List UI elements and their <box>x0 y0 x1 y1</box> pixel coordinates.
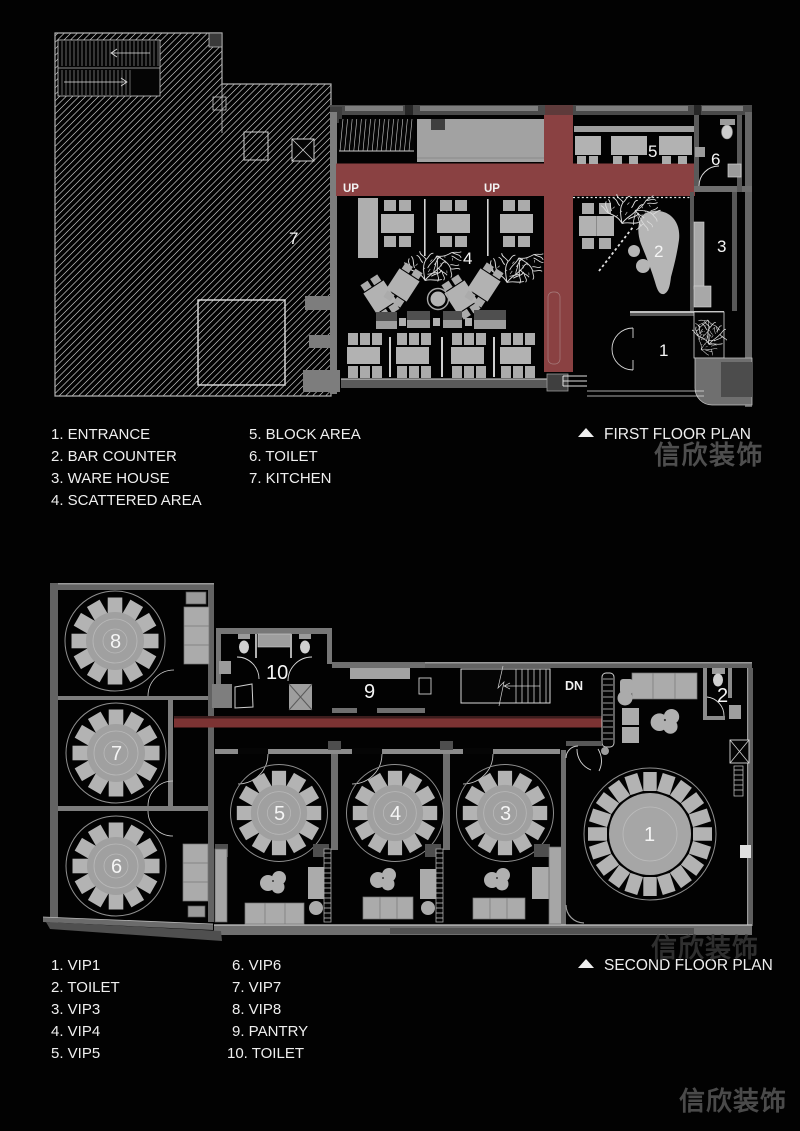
svg-text:7: 7 <box>289 229 298 248</box>
svg-text:信欣装饰: 信欣装饰 <box>651 933 759 963</box>
svg-text:UP: UP <box>484 183 500 195</box>
svg-text:5. BLOCK AREA: 5. BLOCK AREA <box>249 426 361 443</box>
svg-text:7. KITCHEN: 7. KITCHEN <box>249 470 332 487</box>
svg-text:3. VIP3: 3. VIP3 <box>51 1001 100 1018</box>
svg-text:6. TOILET: 6. TOILET <box>249 448 318 465</box>
svg-text:3. WARE HOUSE: 3. WARE HOUSE <box>51 470 170 487</box>
svg-text:2: 2 <box>654 242 663 261</box>
svg-text:4: 4 <box>390 803 401 825</box>
svg-text:3: 3 <box>717 237 726 256</box>
svg-text:9: 9 <box>364 681 375 703</box>
svg-text:6. VIP6: 6. VIP6 <box>232 957 281 974</box>
svg-text:2. BAR COUNTER: 2. BAR COUNTER <box>51 448 177 465</box>
svg-text:4. SCATTERED AREA: 4. SCATTERED AREA <box>51 492 202 509</box>
svg-text:1: 1 <box>659 341 668 360</box>
svg-text:UP: UP <box>343 183 359 195</box>
svg-text:9. PANTRY: 9. PANTRY <box>232 1023 308 1040</box>
svg-text:1. VIP1: 1. VIP1 <box>51 957 100 974</box>
svg-text:2. TOILET: 2. TOILET <box>51 979 120 996</box>
svg-text:信欣装饰: 信欣装饰 <box>654 440 764 470</box>
svg-text:6: 6 <box>111 856 122 878</box>
svg-text:1. ENTRANCE: 1. ENTRANCE <box>51 426 150 443</box>
svg-text:7. VIP7: 7. VIP7 <box>232 979 281 996</box>
svg-text:5: 5 <box>648 142 657 161</box>
svg-text:8. VIP8: 8. VIP8 <box>232 1001 281 1018</box>
svg-text:DN: DN <box>565 679 583 693</box>
svg-text:5. VIP5: 5. VIP5 <box>51 1045 100 1062</box>
svg-text:1: 1 <box>644 824 655 846</box>
svg-text:3: 3 <box>500 803 511 825</box>
svg-text:10: 10 <box>266 662 288 684</box>
svg-text:2: 2 <box>717 685 728 707</box>
svg-text:4: 4 <box>463 249 472 268</box>
svg-text:4. VIP4: 4. VIP4 <box>51 1023 100 1040</box>
svg-text:8: 8 <box>110 631 121 653</box>
svg-text:7: 7 <box>111 743 122 765</box>
svg-text:6: 6 <box>711 150 720 169</box>
svg-text:信欣装饰: 信欣装饰 <box>679 1086 787 1116</box>
svg-text:10. TOILET: 10. TOILET <box>227 1045 304 1062</box>
svg-text:5: 5 <box>274 803 285 825</box>
